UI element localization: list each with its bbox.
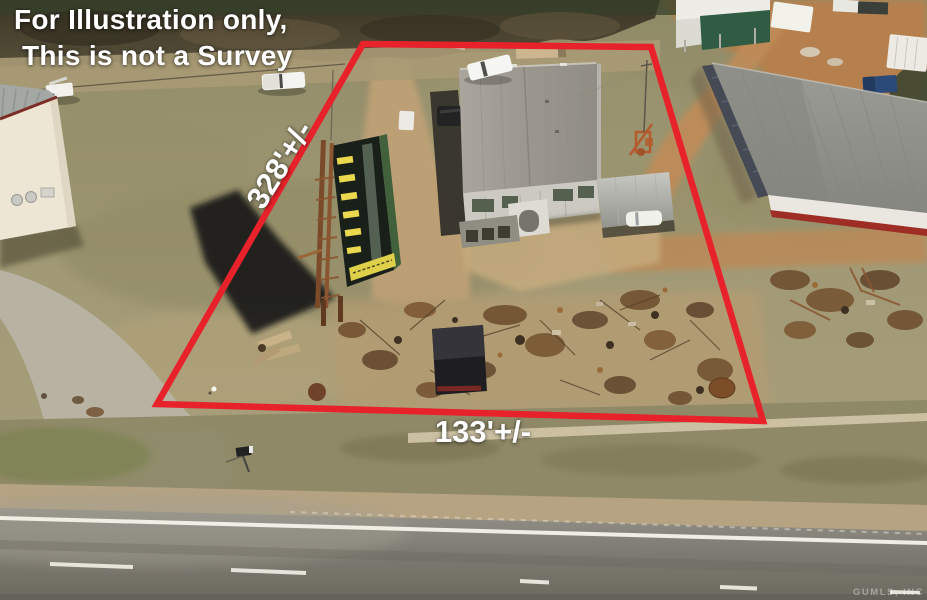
- disclaimer-text: For Illustration only, This is not a Sur…: [14, 2, 293, 74]
- aerial-photo: For Illustration only, This is not a Sur…: [0, 0, 927, 600]
- black-shed: [432, 325, 487, 395]
- disclaimer-line2: This is not a Survey: [14, 38, 293, 74]
- front-measurement-label: 133'+/-: [413, 414, 553, 450]
- watermark-text: GUMLS, INC: [853, 587, 924, 598]
- scene-graphic: [0, 0, 927, 600]
- carport: [597, 172, 675, 238]
- disclaimer-line1: For Illustration only,: [14, 2, 293, 38]
